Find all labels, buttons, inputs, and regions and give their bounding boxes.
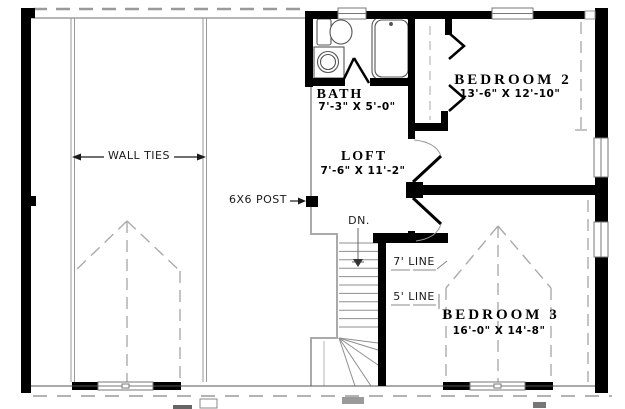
roof-edge-dashed-top	[31, 9, 306, 18]
closet-door-stub	[445, 19, 452, 35]
bath-dims-label: 7'-3" X 5'-0"	[318, 102, 395, 113]
bath-window	[338, 8, 366, 19]
bottom-left-window	[98, 382, 153, 390]
line-5ft-label: 5' LINE	[393, 291, 435, 302]
roof-dashed-bedroom2	[575, 22, 587, 130]
bedroom2-room-label: BEDROOM 2	[454, 73, 571, 88]
roof-ridge-dashed-bedroom3	[446, 200, 588, 382]
post-6x6	[306, 196, 318, 207]
roof-ridge-dashed-left	[75, 221, 180, 384]
line-7ft-label: 7' LINE	[393, 256, 435, 267]
bath-west-wall	[305, 11, 313, 87]
log-notch	[31, 196, 36, 206]
log-notch	[31, 8, 35, 18]
bedroom2-dims-label: 13'-6" X 12'-10"	[460, 89, 561, 100]
bath-south-wall	[370, 78, 415, 86]
bedroom2-right-window	[594, 138, 608, 177]
post-label: 6X6 POST	[229, 194, 287, 205]
bedroom3-bottom-window	[470, 382, 525, 390]
bedroom2-door	[413, 140, 441, 182]
closet-door-stub	[441, 111, 448, 124]
bath-south-wall	[305, 78, 345, 86]
post-leader-arrow	[290, 198, 306, 205]
bedroom3-right-window	[594, 222, 608, 257]
bedroom2-top-window	[492, 8, 533, 19]
bedroom3-dims-label: 16'-0" X 14'-8"	[453, 326, 546, 337]
wall-tie-lines	[71, 18, 207, 382]
bath-room-label: BATH	[317, 88, 364, 102]
loft-dims-label: 7'-6" X 11'-2"	[320, 166, 405, 177]
down-label: DN.	[348, 215, 370, 226]
lower-floor-cropped-marks	[173, 397, 546, 409]
sink-icon	[314, 47, 344, 78]
toilet-icon	[317, 19, 352, 45]
bedroom3-room-label: BEDROOM 3	[442, 308, 559, 323]
bedroom-divider-wall	[408, 185, 597, 195]
staircase	[324, 243, 378, 386]
loft-room-label: LOFT	[341, 150, 387, 164]
closet-bottom-wall	[413, 123, 448, 131]
floorplan-drawing	[0, 0, 625, 409]
bath-door	[342, 58, 369, 83]
corner-joint	[585, 11, 595, 19]
wall-ties-label: WALL TIES	[108, 150, 170, 161]
floorplan: BATH 7'-3" X 5'-0" LOFT 7'-6" X 11'-2" B…	[0, 0, 625, 409]
down-arrow-icon	[352, 228, 364, 267]
stair-side-wall	[378, 233, 386, 386]
bathtub-icon	[372, 17, 411, 80]
